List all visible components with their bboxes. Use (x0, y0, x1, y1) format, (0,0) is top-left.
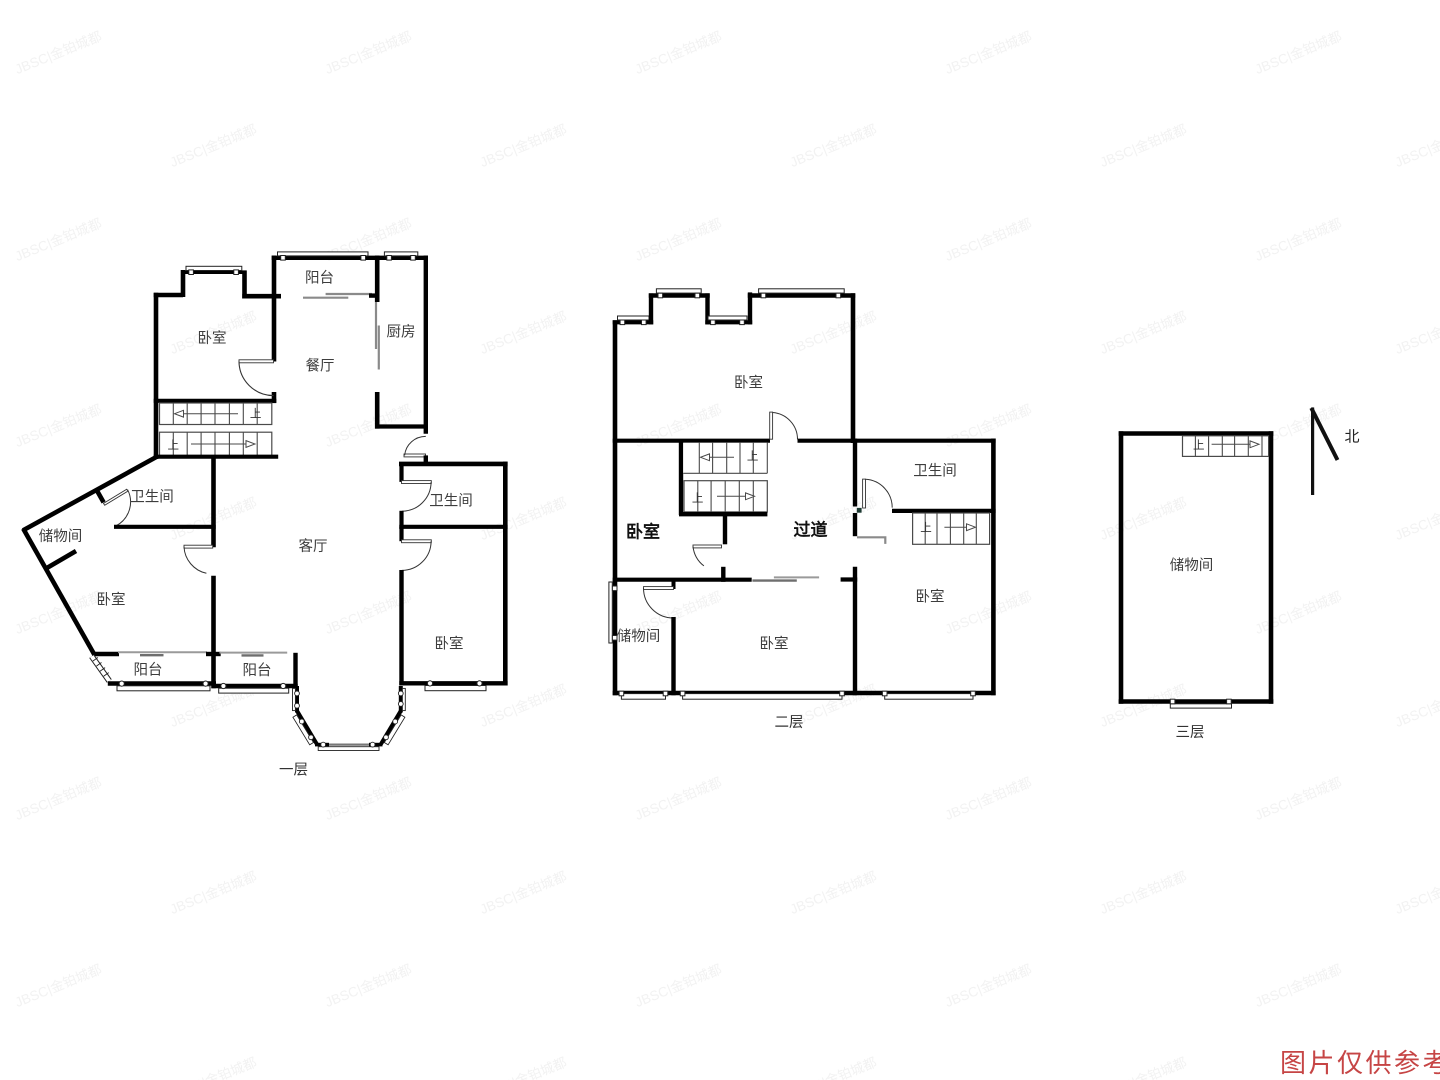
svg-text:上: 上 (1193, 439, 1205, 452)
svg-text:上: 上 (692, 492, 704, 505)
svg-text:卧室: 卧室 (97, 591, 126, 608)
svg-text:一层: 一层 (279, 763, 308, 779)
svg-text:卧室: 卧室 (916, 589, 945, 606)
svg-text:北: 北 (1344, 429, 1359, 446)
svg-text:卧室: 卧室 (760, 636, 789, 653)
svg-text:阳台: 阳台 (134, 662, 163, 679)
svg-text:上: 上 (747, 450, 759, 463)
svg-text:卫生间: 卫生间 (913, 463, 957, 480)
svg-text:储物间: 储物间 (1170, 557, 1214, 574)
svg-text:客厅: 客厅 (299, 538, 328, 555)
svg-text:餐厅: 餐厅 (306, 358, 335, 375)
svg-text:厨房: 厨房 (387, 324, 416, 341)
svg-text:阳台: 阳台 (243, 662, 272, 679)
svg-text:储物间: 储物间 (617, 628, 661, 645)
svg-text:储物间: 储物间 (39, 528, 83, 545)
svg-text:卫生间: 卫生间 (429, 493, 473, 510)
svg-text:卧室: 卧室 (626, 522, 660, 542)
svg-text:图片仅供参考: 图片仅供参考 (1280, 1048, 1440, 1078)
svg-text:卫生间: 卫生间 (130, 489, 174, 506)
svg-text:阳台: 阳台 (305, 270, 334, 287)
svg-text:上: 上 (250, 408, 262, 421)
svg-text:三层: 三层 (1176, 725, 1205, 741)
svg-text:卧室: 卧室 (198, 330, 227, 347)
svg-text:过道: 过道 (794, 520, 828, 540)
svg-text:卧室: 卧室 (435, 636, 464, 653)
svg-text:二层: 二层 (775, 715, 804, 731)
svg-text:上: 上 (920, 522, 932, 535)
svg-text:卧室: 卧室 (734, 375, 763, 392)
svg-text:上: 上 (168, 439, 180, 452)
